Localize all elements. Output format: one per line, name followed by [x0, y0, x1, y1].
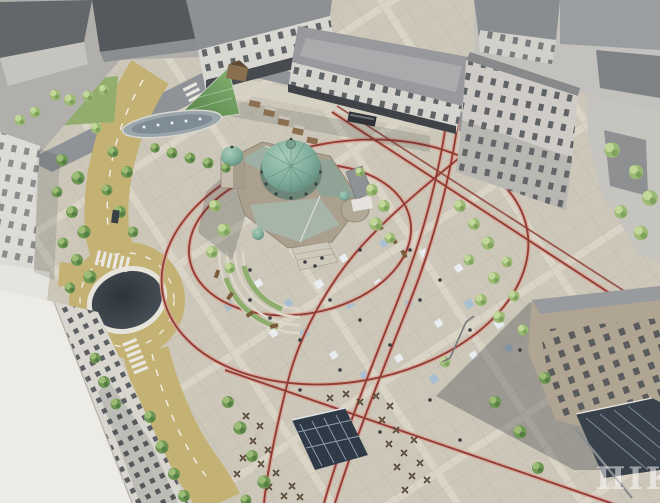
bell-tower-dome: [221, 146, 243, 166]
scene-canvas: ПIК: [0, 0, 660, 503]
ne-cupola: [339, 191, 349, 201]
watermark-logo: ПIК: [596, 461, 660, 497]
dome-lantern: [287, 140, 296, 149]
sw-cupola: [252, 228, 264, 240]
aerial-render-image: ПIК: [0, 0, 660, 503]
